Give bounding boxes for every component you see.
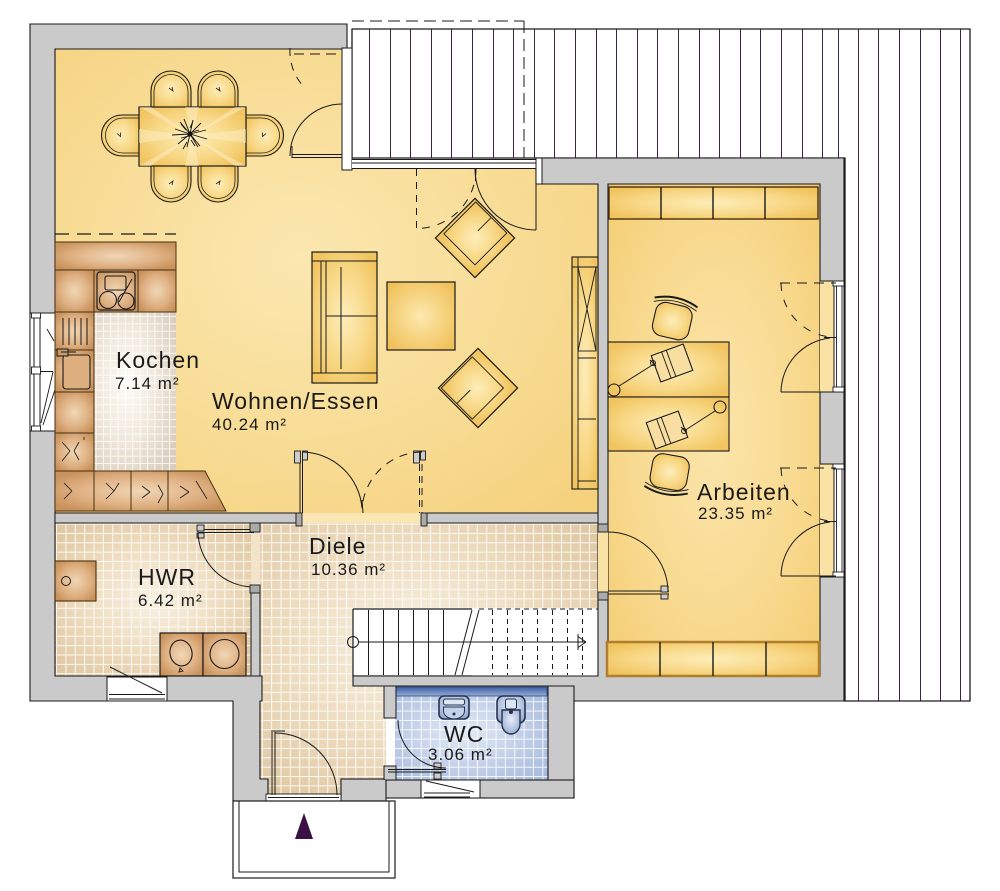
svg-text:23.35 m²: 23.35 m²: [698, 504, 773, 523]
svg-text:6.42 m²: 6.42 m²: [138, 591, 203, 610]
svg-text:Kochen: Kochen: [116, 347, 200, 373]
svg-text:10.36 m²: 10.36 m²: [311, 560, 386, 579]
svg-text:Arbeiten: Arbeiten: [697, 479, 791, 505]
svg-text:WC: WC: [444, 721, 484, 747]
svg-text:Diele: Diele: [309, 533, 366, 559]
svg-text:HWR: HWR: [138, 564, 196, 590]
svg-text:3.06 m²: 3.06 m²: [428, 745, 493, 764]
svg-text:Wohnen/Essen: Wohnen/Essen: [212, 388, 380, 414]
svg-text:40.24 m²: 40.24 m²: [212, 415, 287, 434]
svg-text:7.14 m²: 7.14 m²: [115, 374, 180, 393]
